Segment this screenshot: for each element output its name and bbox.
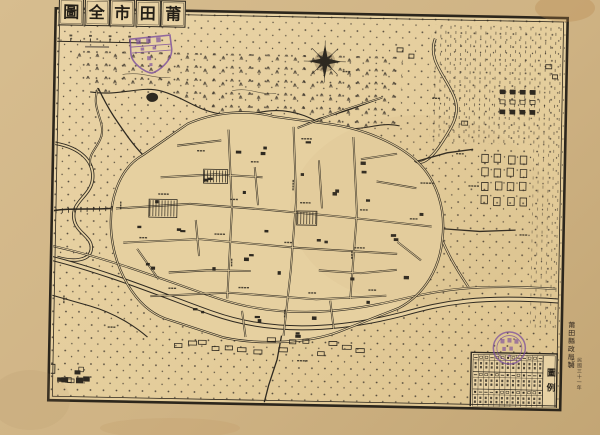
map-canvas: [0, 0, 600, 435]
scanned-map-putian: 圖 全 市 田 莆 圖例 莆田縣政局製 民國三十一年七月: [0, 0, 600, 435]
legend-table: [470, 352, 557, 410]
